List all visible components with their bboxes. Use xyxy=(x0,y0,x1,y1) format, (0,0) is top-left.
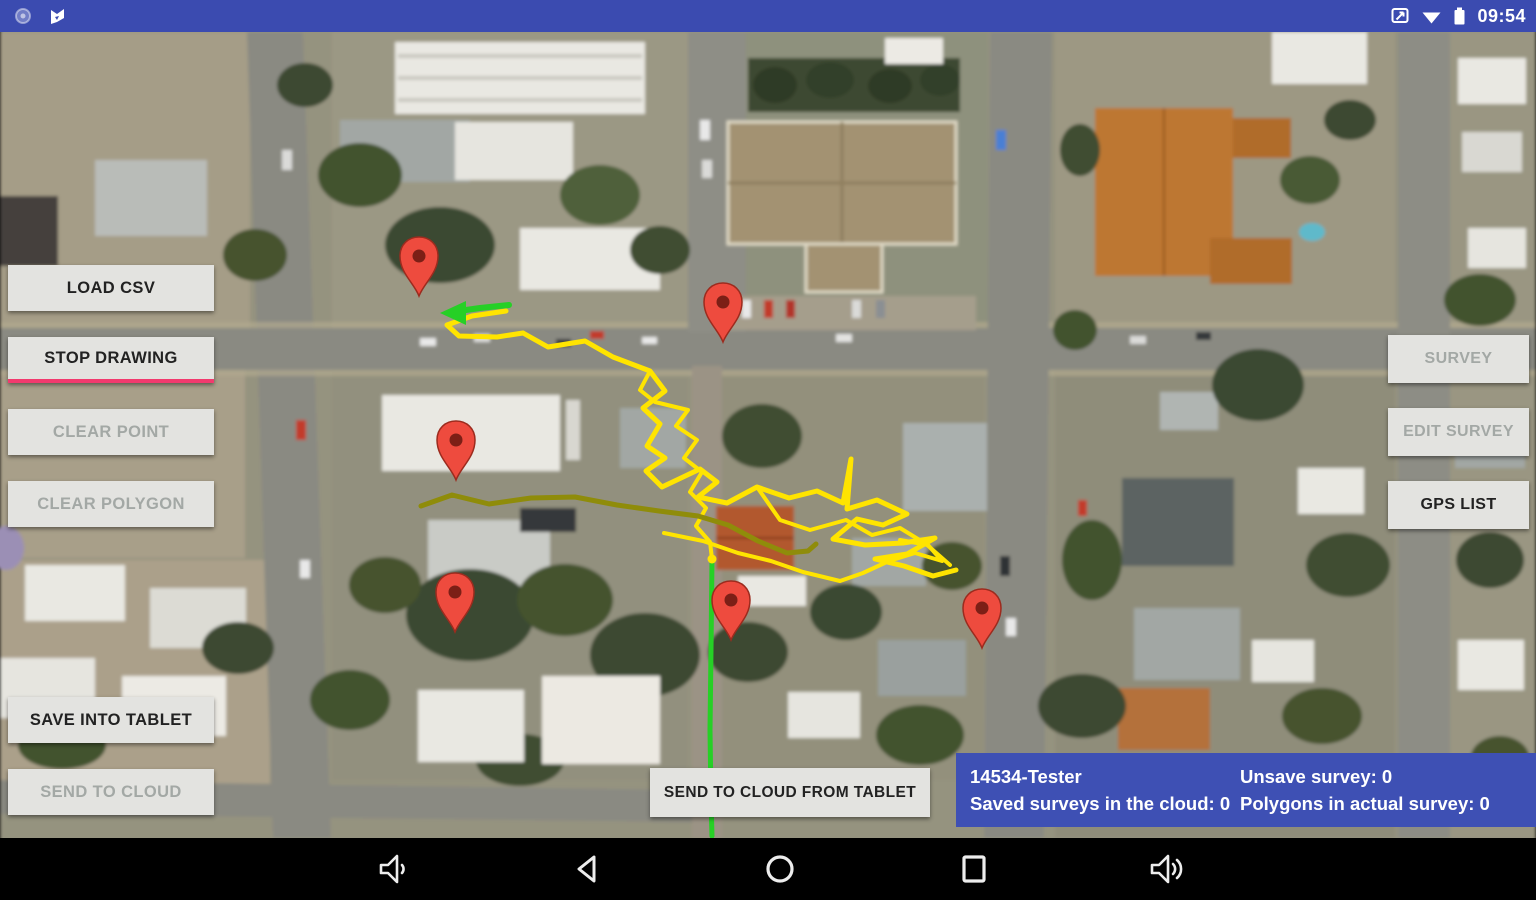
survey-status-panel: 14534-Tester Saved surveys in the cloud:… xyxy=(956,753,1536,827)
volume-up-icon[interactable] xyxy=(1147,853,1187,885)
stop-drawing-button[interactable]: STOP DRAWING xyxy=(8,337,214,383)
android-status-bar: 09:54 xyxy=(0,0,1536,32)
clear-polygon-button[interactable]: CLEAR POLYGON xyxy=(8,481,214,527)
send-to-cloud-button[interactable]: SEND TO CLOUD xyxy=(8,769,214,815)
sync-status-icon xyxy=(14,7,32,25)
gps-track-node xyxy=(708,555,717,564)
gps-list-button[interactable]: GPS LIST xyxy=(1388,481,1529,529)
wifi-icon xyxy=(1421,7,1442,25)
edit-survey-button[interactable]: EDIT SURVEY xyxy=(1388,408,1529,456)
right-toolbar: SURVEYEDIT SURVEYGPS LIST xyxy=(1388,335,1529,554)
android-nav-bar xyxy=(0,838,1536,900)
polygons-count-label: Polygons in actual survey: 0 xyxy=(1240,791,1518,816)
screenshot-icon xyxy=(1391,7,1410,25)
back-icon[interactable] xyxy=(572,853,602,885)
clear-point-button[interactable]: CLEAR POINT xyxy=(8,409,214,455)
left-toolbar-top: LOAD CSVSTOP DRAWINGCLEAR POINTCLEAR POL… xyxy=(8,265,214,553)
volume-down-icon[interactable] xyxy=(375,853,413,885)
bottom-toolbar: SEND TO CLOUD FROM TABLET xyxy=(650,768,930,817)
send-to-cloud-from-tablet-button[interactable]: SEND TO CLOUD FROM TABLET xyxy=(650,768,930,817)
flag-icon xyxy=(48,7,67,26)
unsaved-survey-label: Unsave survey: 0 xyxy=(1240,764,1518,789)
saved-surveys-label: Saved surveys in the cloud: 0 xyxy=(970,791,1230,816)
tester-id-label: 14534-Tester xyxy=(970,764,1230,789)
save-into-tablet-button[interactable]: SAVE INTO TABLET xyxy=(8,697,214,743)
recents-icon[interactable] xyxy=(959,853,989,885)
load-csv-button[interactable]: LOAD CSV xyxy=(8,265,214,311)
home-icon[interactable] xyxy=(764,853,796,885)
left-toolbar-bottom: SAVE INTO TABLETSEND TO CLOUD xyxy=(8,697,214,841)
android-tablet-screen: { "status_bar": { "time": "09:54", "left… xyxy=(0,0,1536,900)
clock: 09:54 xyxy=(1477,6,1526,27)
survey-button[interactable]: SURVEY xyxy=(1388,335,1529,383)
battery-icon xyxy=(1453,6,1466,26)
